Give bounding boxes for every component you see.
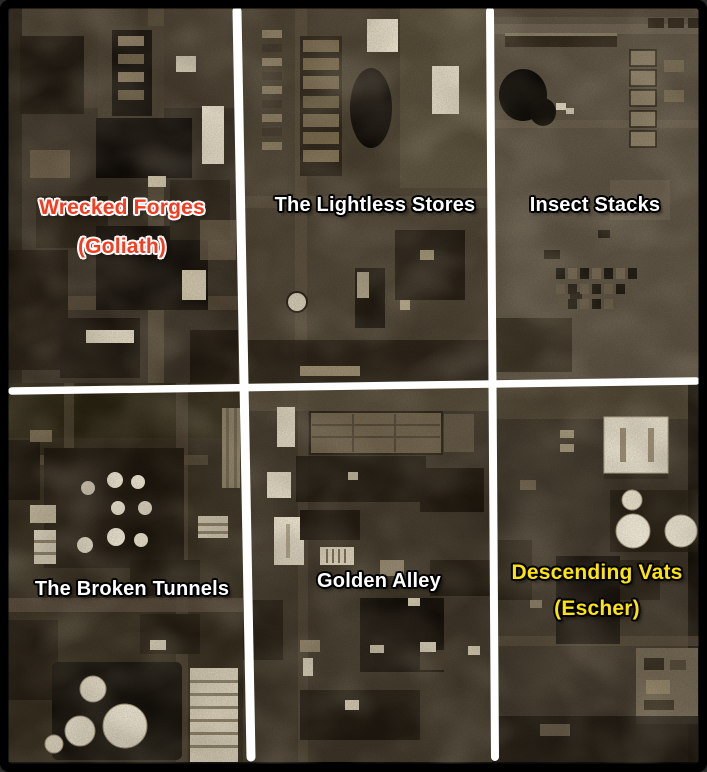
industrial-aerial-map: Wrecked Forges (Goliath) The Lightless S… (0, 0, 707, 772)
aerial-imagery (0, 0, 707, 772)
